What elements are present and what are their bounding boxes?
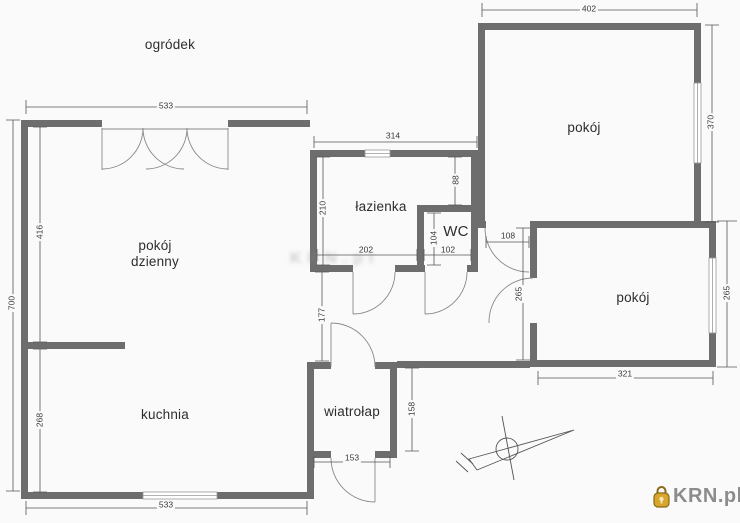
padlock-icon (652, 484, 671, 509)
room-label-room-bottom: pokój (616, 290, 649, 306)
brand-logo: KRN.pl (652, 484, 740, 509)
room-label-room-top: pokój (567, 120, 600, 136)
room-label-living-line2: dzienny (131, 254, 179, 270)
dim-label-153: 153 (343, 454, 361, 463)
floor-plan-canvas: ogródek pokój dzienny kuchnia łazienka W… (0, 0, 740, 523)
dim-label-177: 177 (318, 306, 327, 324)
room-label-wc: WC (443, 224, 468, 240)
brand-text: KRN.pl (673, 485, 740, 508)
dim-label-108: 108 (499, 232, 517, 241)
watermark-text: KRN.pl (290, 250, 440, 272)
window-bathroom-north (365, 150, 390, 157)
room-label-living-line1: pokój (131, 238, 179, 254)
dim-label-700: 700 (8, 294, 17, 312)
room-label-kitchen: kuchnia (141, 407, 189, 423)
dim-label-210: 210 (319, 199, 328, 217)
door-bathroom (353, 272, 395, 314)
dim-label-416: 416 (36, 223, 45, 241)
dim-label-402: 402 (580, 5, 598, 14)
dim-label-321: 321 (616, 370, 634, 379)
dim-label-265-hall: 265 (515, 285, 524, 303)
room-label-living-room: pokój dzienny (131, 238, 179, 270)
french-door-garden (102, 128, 228, 170)
dim-label-268: 268 (36, 411, 45, 429)
window-kitchen-south (143, 492, 217, 499)
dim-label-314: 314 (384, 132, 402, 141)
north-arrow (456, 416, 574, 480)
room-label-bathroom: łazienka (355, 199, 406, 215)
dim-label-265-right: 265 (723, 284, 732, 302)
door-wc (425, 272, 467, 314)
dim-label-104: 104 (430, 229, 439, 247)
window-room-bottom-east (709, 258, 716, 333)
door-entrance (331, 458, 375, 502)
dim-label-158: 158 (408, 400, 417, 418)
dim-label-370: 370 (707, 113, 716, 131)
dim-label-533-top: 533 (157, 102, 175, 111)
window-room-top-east (694, 83, 701, 163)
door-vestibule-inner (331, 323, 375, 367)
dim-label-102: 102 (439, 246, 457, 255)
door-room-bottom (489, 278, 533, 323)
dim-label-533-bottom: 533 (157, 501, 175, 510)
room-label-garden: ogródek (145, 37, 195, 53)
dim-label-88: 88 (452, 173, 461, 186)
room-label-vestibule: wiatrołap (324, 404, 380, 420)
